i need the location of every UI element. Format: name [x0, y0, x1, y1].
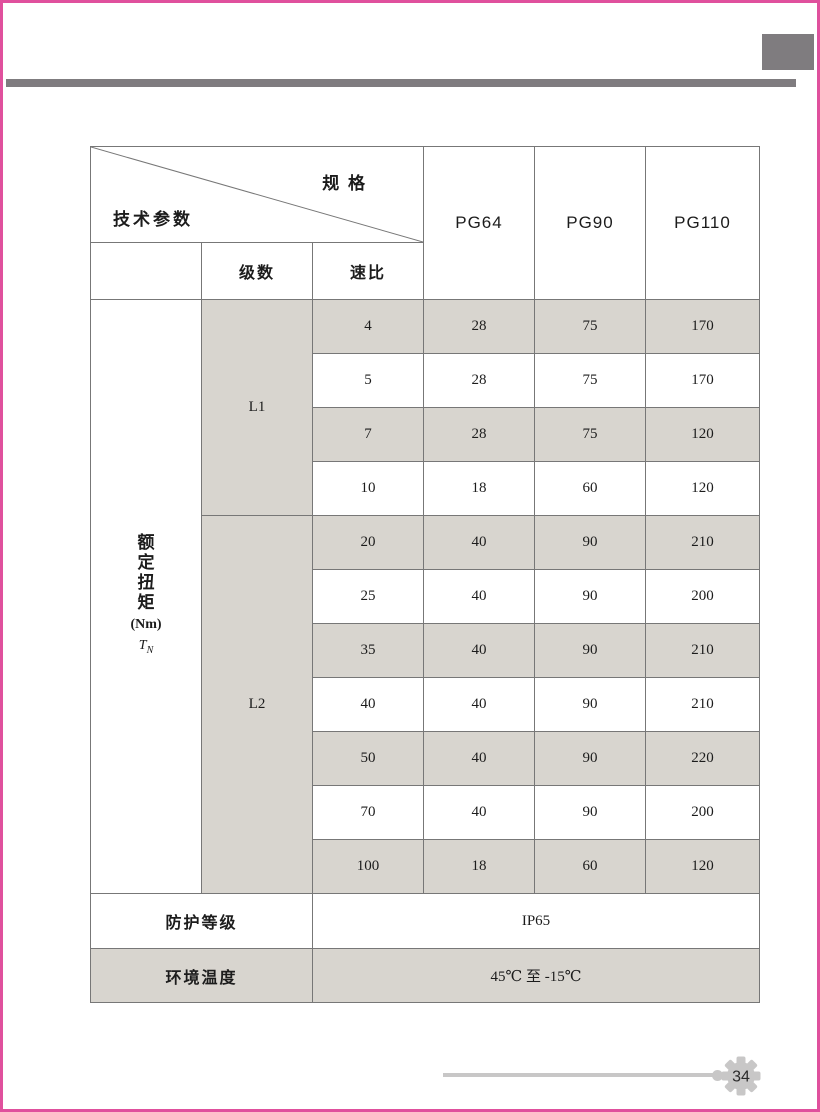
torque-char: 定	[138, 553, 155, 573]
torque-label-cell: 额 定 扭 矩 (Nm) TN	[91, 300, 202, 894]
pg90-value-cell: 75	[535, 354, 646, 408]
catalog-page: 规 格 技术参数 PG64 PG90 PG110 级数 速比 额 定	[0, 0, 820, 1112]
pg110-value-cell: 210	[646, 678, 760, 732]
pg110-value-cell: 210	[646, 516, 760, 570]
pg90-value-cell: 90	[535, 678, 646, 732]
ratio-cell: 4	[313, 300, 424, 354]
stage-cell-l2: L2	[202, 516, 313, 894]
diagonal-header-cell: 规 格 技术参数	[91, 147, 424, 243]
pg64-value-cell: 18	[424, 840, 535, 894]
pg90-value-cell: 90	[535, 624, 646, 678]
torque-unit: (Nm)	[130, 615, 161, 635]
pg90-value-cell: 60	[535, 462, 646, 516]
pg64-value-cell: 28	[424, 408, 535, 462]
pg64-value-cell: 40	[424, 516, 535, 570]
pg110-value-cell: 200	[646, 570, 760, 624]
spec-table: 规 格 技术参数 PG64 PG90 PG110 级数 速比 额 定	[90, 146, 760, 1003]
ratio-cell: 40	[313, 678, 424, 732]
pg64-value-cell: 28	[424, 354, 535, 408]
ratio-cell: 50	[313, 732, 424, 786]
torque-char: 扭	[138, 573, 155, 593]
pg64-value-cell: 40	[424, 570, 535, 624]
stage-header: 级数	[202, 243, 313, 300]
protection-value: IP65	[313, 894, 760, 949]
ratio-header: 速比	[313, 243, 424, 300]
stage-cell-l1: L1	[202, 300, 313, 516]
pg110-value-cell: 210	[646, 624, 760, 678]
pg90-value-cell: 90	[535, 570, 646, 624]
pg64-value-cell: 18	[424, 462, 535, 516]
model-header-pg90: PG90	[535, 147, 646, 300]
torque-symbol: TN	[139, 636, 153, 661]
torque-char: 额	[138, 533, 155, 553]
top-right-gray-block	[762, 34, 814, 70]
ratio-cell: 5	[313, 354, 424, 408]
blank-header-cell	[91, 243, 202, 300]
model-header-pg110: PG110	[646, 147, 760, 300]
ratio-cell: 20	[313, 516, 424, 570]
footer-line	[443, 1073, 717, 1077]
pg110-value-cell: 170	[646, 300, 760, 354]
torque-char: 矩	[138, 593, 155, 613]
pg110-value-cell: 220	[646, 732, 760, 786]
pg64-value-cell: 40	[424, 624, 535, 678]
gear-page-badge: 34	[719, 1054, 763, 1098]
model-header-pg64: PG64	[424, 147, 535, 300]
pg64-value-cell: 40	[424, 678, 535, 732]
pg64-value-cell: 40	[424, 732, 535, 786]
torque-label: 额 定 扭 矩 (Nm) TN	[91, 533, 201, 661]
ratio-cell: 25	[313, 570, 424, 624]
pg110-value-cell: 120	[646, 408, 760, 462]
pg90-value-cell: 75	[535, 408, 646, 462]
pg110-value-cell: 120	[646, 462, 760, 516]
spec-label: 规 格	[322, 169, 367, 194]
pg64-value-cell: 28	[424, 300, 535, 354]
pg90-value-cell: 60	[535, 840, 646, 894]
ratio-cell: 35	[313, 624, 424, 678]
pg110-value-cell: 200	[646, 786, 760, 840]
ratio-cell: 100	[313, 840, 424, 894]
page-number: 34	[732, 1069, 750, 1086]
ratio-cell: 7	[313, 408, 424, 462]
param-label: 技术参数	[113, 205, 193, 230]
pg90-value-cell: 90	[535, 786, 646, 840]
temperature-value: 45℃ 至 -15℃	[313, 949, 760, 1003]
temperature-label: 环境温度	[91, 949, 313, 1003]
protection-label: 防护等级	[91, 894, 313, 949]
pg90-value-cell: 75	[535, 300, 646, 354]
pg90-value-cell: 90	[535, 732, 646, 786]
pg64-value-cell: 40	[424, 786, 535, 840]
ratio-cell: 10	[313, 462, 424, 516]
pg110-value-cell: 170	[646, 354, 760, 408]
top-gray-bar	[6, 79, 796, 87]
pg110-value-cell: 120	[646, 840, 760, 894]
pg90-value-cell: 90	[535, 516, 646, 570]
ratio-cell: 70	[313, 786, 424, 840]
